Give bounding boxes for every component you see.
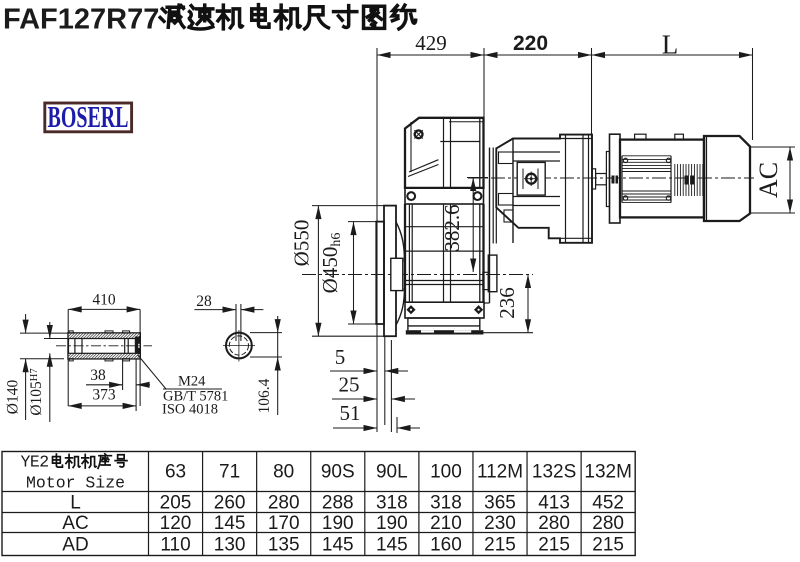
svg-text:260: 260 [214, 493, 246, 514]
svg-text:215: 215 [538, 535, 570, 556]
svg-text:318: 318 [430, 493, 462, 514]
svg-text:M24: M24 [178, 374, 206, 390]
svg-text:288: 288 [322, 493, 354, 514]
svg-text:382.6: 382.6 [440, 204, 464, 251]
svg-text:YE2: YE2 [21, 453, 49, 472]
svg-text:190: 190 [376, 513, 408, 534]
svg-text:413: 413 [538, 493, 570, 514]
svg-text:365: 365 [484, 493, 516, 514]
svg-text:L: L [70, 493, 81, 514]
svg-text:Ø550: Ø550 [290, 220, 314, 267]
svg-text:AD: AD [62, 535, 88, 556]
svg-text:90S: 90S [321, 462, 355, 483]
svg-text:215: 215 [592, 535, 624, 556]
svg-text:AC: AC [754, 162, 783, 198]
svg-text:28: 28 [196, 293, 212, 310]
svg-text:38: 38 [90, 367, 106, 384]
svg-text:373: 373 [92, 387, 116, 404]
svg-text:230: 230 [484, 513, 516, 534]
svg-text:100: 100 [430, 462, 462, 483]
svg-text:AC: AC [62, 513, 88, 534]
svg-text:Ø140: Ø140 [5, 380, 22, 415]
svg-text:Motor Size: Motor Size [26, 474, 125, 493]
svg-text:120: 120 [160, 513, 192, 534]
svg-text:63: 63 [165, 462, 186, 483]
svg-text:132M: 132M [584, 462, 632, 483]
svg-text:112M: 112M [477, 462, 523, 483]
svg-text:ISO 4018: ISO 4018 [162, 402, 218, 418]
svg-text:190: 190 [322, 513, 354, 534]
svg-text:280: 280 [592, 513, 624, 534]
svg-text:160: 160 [430, 535, 462, 556]
svg-text:236: 236 [495, 287, 519, 319]
svg-text:410: 410 [92, 292, 116, 309]
svg-text:FAF127R77: FAF127R77 [3, 4, 159, 36]
svg-text:51: 51 [340, 401, 361, 425]
svg-text:5: 5 [335, 345, 346, 369]
svg-text:80: 80 [273, 462, 294, 483]
svg-text:145: 145 [376, 535, 408, 556]
svg-text:71: 71 [219, 462, 240, 483]
svg-text:280: 280 [538, 513, 570, 534]
svg-text:132S: 132S [532, 462, 576, 483]
svg-text:135: 135 [268, 535, 300, 556]
svg-text:130: 130 [214, 535, 246, 556]
svg-text:170: 170 [268, 513, 300, 534]
svg-text:106.4: 106.4 [256, 378, 273, 413]
svg-text:BOSERL: BOSERL [48, 99, 129, 134]
svg-text:210: 210 [430, 513, 462, 534]
svg-text:25: 25 [339, 373, 360, 397]
svg-text:429: 429 [415, 31, 447, 55]
svg-text:452: 452 [592, 493, 624, 514]
svg-text:220: 220 [513, 32, 548, 55]
svg-text:318: 318 [376, 493, 408, 514]
svg-text:280: 280 [268, 493, 300, 514]
svg-text:L: L [662, 30, 679, 60]
svg-text:90L: 90L [376, 462, 408, 483]
svg-text:205: 205 [160, 493, 192, 514]
svg-text:110: 110 [160, 535, 190, 556]
svg-text:145: 145 [322, 535, 354, 556]
svg-text:215: 215 [484, 535, 516, 556]
svg-text:145: 145 [214, 513, 246, 534]
